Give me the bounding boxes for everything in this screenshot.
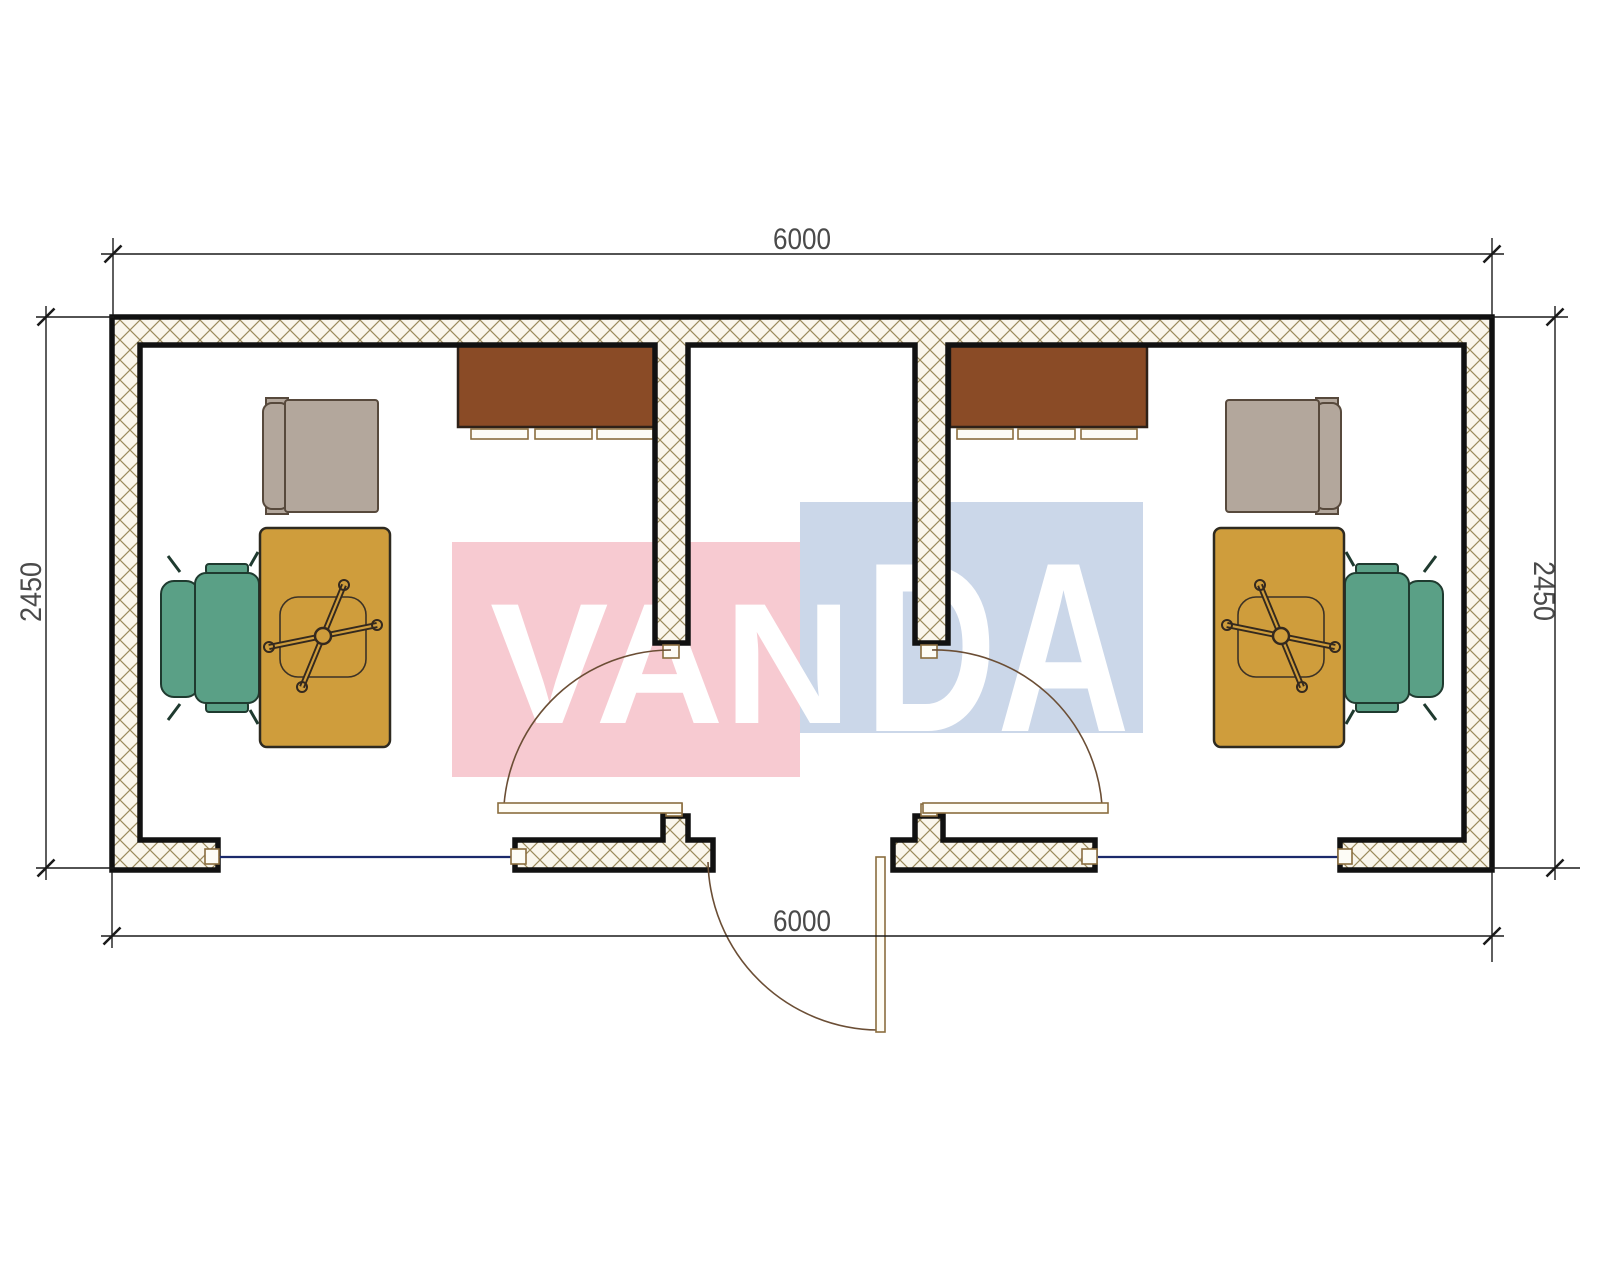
office-chair-right-back <box>1405 581 1443 697</box>
desk-left <box>260 528 390 747</box>
desk-right <box>1214 528 1344 747</box>
door-leaf-right-room <box>923 803 1108 813</box>
door-swing-arc-entrance <box>708 862 878 1030</box>
armchair-right-seat <box>1226 400 1319 512</box>
window-frame <box>511 849 526 864</box>
cabinet-right-body <box>950 343 1147 427</box>
bottom-wall-segment-left <box>515 816 713 870</box>
cabinet-left <box>458 343 660 439</box>
armchair-right <box>1226 398 1341 514</box>
window-frame <box>1338 849 1352 864</box>
door-leaf-left-room <box>498 803 682 813</box>
armchair-left <box>263 398 378 514</box>
office-chair-left-seat <box>195 573 259 703</box>
window-frame <box>1082 849 1097 864</box>
dimension-top: 6000 <box>101 223 1504 315</box>
bottom-wall-segment-right <box>893 816 1095 870</box>
dimension-left: 2450 <box>15 306 114 880</box>
door-pivot-block <box>921 645 937 658</box>
cabinet-right <box>950 343 1147 439</box>
cabinet-left-foot <box>535 429 592 439</box>
dimension-label-top: 6000 <box>773 223 831 256</box>
cabinet-right-foot <box>1018 429 1075 439</box>
office-chair-left-back <box>161 581 199 697</box>
cabinet-right-foot <box>957 429 1013 439</box>
floor-plan-page: VAN DA <box>0 0 1600 1280</box>
cabinet-left-foot <box>471 429 528 439</box>
office-chair-left <box>161 552 259 724</box>
office-chair-right <box>1345 552 1443 724</box>
cabinet-left-body <box>458 343 660 427</box>
door-leaf-entrance <box>876 857 885 1032</box>
cabinet-right-foot <box>1081 429 1137 439</box>
dimension-right: 2450 <box>1490 306 1580 880</box>
watermark-text-da: DA <box>864 513 1130 783</box>
windows <box>205 849 1352 864</box>
window-frame <box>205 849 219 864</box>
floor-plan-drawing: VAN DA <box>0 0 1600 1280</box>
armchair-left-seat <box>285 400 378 512</box>
office-chair-right-seat <box>1345 573 1409 703</box>
dimension-label-bottom: 6000 <box>773 905 831 938</box>
door-pivot-block <box>663 645 679 658</box>
vanda-watermark: VAN DA <box>452 502 1143 783</box>
dimension-label-left: 2450 <box>15 562 48 622</box>
dimension-bottom: 6000 <box>101 872 1504 962</box>
dimension-label-right: 2450 <box>1527 561 1560 621</box>
cabinet-left-foot <box>597 429 653 439</box>
